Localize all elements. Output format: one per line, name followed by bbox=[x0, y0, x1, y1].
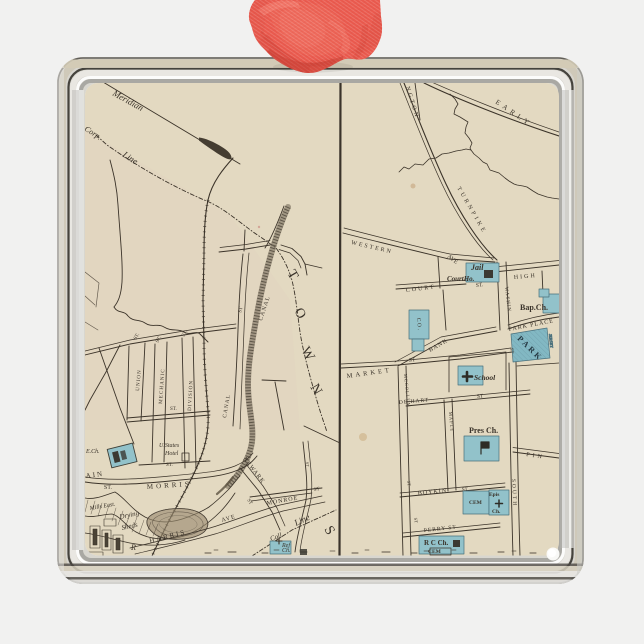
svg-text:ST.: ST. bbox=[170, 407, 177, 412]
svg-text:Bap.Ch.: Bap.Ch. bbox=[520, 303, 548, 312]
svg-text:ST.: ST. bbox=[104, 485, 113, 491]
svg-text:ST: ST bbox=[313, 487, 320, 493]
svg-text:ST: ST bbox=[508, 348, 514, 354]
svg-text:ST: ST bbox=[462, 487, 468, 493]
svg-text:CO.: CO. bbox=[415, 318, 422, 332]
svg-text:CEM: CEM bbox=[428, 549, 442, 555]
svg-text:Jail: Jail bbox=[470, 263, 484, 272]
svg-text:Hotel: Hotel bbox=[164, 451, 179, 457]
svg-text:R: R bbox=[130, 543, 136, 552]
svg-text:U.States: U.States bbox=[159, 443, 180, 449]
svg-text:Ch.: Ch. bbox=[282, 548, 291, 554]
svg-text:ST.: ST. bbox=[166, 463, 173, 468]
svg-text:CEM: CEM bbox=[469, 500, 483, 506]
svg-text:R C Ch.: R C Ch. bbox=[424, 539, 449, 547]
svg-text:Ch.: Ch. bbox=[492, 509, 501, 515]
svg-text:CourtHo.: CourtHo. bbox=[447, 275, 475, 283]
svg-text:Pres Ch.: Pres Ch. bbox=[469, 426, 498, 435]
svg-text:ST.: ST. bbox=[476, 282, 485, 289]
svg-text:E.Ch.: E.Ch. bbox=[85, 449, 100, 455]
svg-text:Epis: Epis bbox=[489, 492, 499, 498]
svg-text:School: School bbox=[474, 373, 496, 382]
svg-text:ST: ST bbox=[477, 393, 485, 400]
